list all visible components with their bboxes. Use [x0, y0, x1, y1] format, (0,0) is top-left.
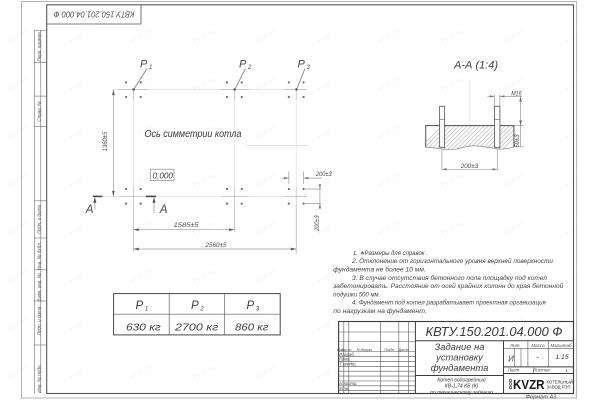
svg-text:N докум.: N докум. — [357, 347, 373, 352]
svg-text:ЗАВОД РЭП: ЗАВОД РЭП — [547, 385, 571, 390]
svg-text:КВТУ.150.201.04.000 Ф: КВТУ.150.201.04.000 Ф — [426, 324, 563, 339]
svg-text:А: А — [85, 204, 94, 216]
svg-text:установку: установку — [435, 352, 484, 363]
svg-text:Инв. № дубл.: Инв. № дубл. — [37, 242, 42, 270]
svg-text:по техническому заданию: по техническому заданию — [430, 390, 493, 396]
svg-text:630 кг: 630 кг — [126, 322, 161, 334]
svg-text:Подп. и дата: Подп. и дата — [37, 205, 42, 234]
svg-text:Перв. примен.: Перв. примен. — [37, 31, 42, 62]
svg-text:0,000: 0,000 — [153, 171, 174, 180]
svg-text:200±3: 200±3 — [460, 164, 479, 170]
svg-text:1. ∗Размеры для справок .: 1. ∗Размеры для справок . — [353, 249, 428, 257]
svg-text:Лит.: Лит. — [509, 343, 521, 348]
svg-text:Утв.: Утв. — [339, 386, 349, 391]
svg-text:Справ. №: Справ. № — [37, 101, 42, 122]
svg-text:1360±5: 1360±5 — [103, 131, 109, 151]
svg-text:2560±5: 2560±5 — [204, 243, 227, 249]
svg-text:50±3: 50±3 — [515, 134, 521, 148]
svg-text:1585±5: 1585±5 — [174, 223, 200, 229]
svg-text:Задание на: Задание на — [435, 341, 485, 352]
svg-text:фундамента: фундамента — [431, 362, 489, 373]
svg-text:4. Фундамент под котел разраба: 4. Фундамент под котел разрабатывает про… — [352, 299, 546, 307]
svg-text:Формат А3: Формат А3 — [526, 394, 557, 400]
svg-text:860 кг: 860 кг — [235, 322, 268, 334]
svg-text:Подп. и дата: Подп. и дата — [37, 306, 42, 335]
svg-text:2700 кг: 2700 кг — [174, 322, 218, 334]
svg-text:KVZR: KVZR — [513, 377, 545, 392]
svg-text:Подп.: Подп. — [384, 347, 395, 352]
svg-text:Дата: Дата — [397, 347, 409, 352]
svg-text:Котел водогрейный: Котел водогрейный — [437, 376, 486, 383]
svg-text:А: А — [159, 204, 168, 216]
svg-text:Лист: Лист — [507, 368, 520, 373]
svg-text:Листов: Листов — [532, 368, 550, 373]
svg-text:200±3: 200±3 — [315, 215, 321, 232]
svg-text:2. Отклонение от горизонтально: 2. Отклонение от горизонтального уровня … — [351, 257, 553, 265]
svg-text:Взам. инв. №: Взам. инв. № — [37, 273, 42, 301]
svg-text:Масштаб: Масштаб — [550, 343, 571, 348]
svg-text:И: И — [508, 354, 514, 363]
svg-text:Т.контр.: Т.контр. — [339, 362, 356, 367]
svg-text:1: 1 — [565, 368, 568, 374]
svg-text:по нагрузкам на фундамент.: по нагрузкам на фундамент. — [333, 307, 427, 315]
svg-text:КВТУ.150.201.04.000 Ф: КВТУ.150.201.04.000 Ф — [53, 9, 135, 18]
svg-text:200±3: 200±3 — [315, 172, 332, 178]
svg-text:Инв. № подл.: Инв. № подл. — [37, 364, 42, 393]
svg-text:фундамента не более 10 мм.: фундамента не более 10 мм. — [333, 266, 426, 274]
svg-text:3. В случае отсутствия бетонно: 3. В случае отсутствия бетонного пола пл… — [352, 274, 547, 282]
svg-text:1:15: 1:15 — [555, 354, 568, 361]
svg-text:КВ-1,74 КБ (К): КВ-1,74 КБ (К) — [445, 384, 479, 390]
svg-text:подушки 500 мм.: подушки 500 мм. — [333, 290, 380, 298]
svg-text:А-А (1:4): А-А (1:4) — [453, 60, 498, 72]
svg-text:Масса: Масса — [531, 343, 545, 348]
svg-text:забетонировать. Расстояние от: забетонировать. Расстояние от осей крайн… — [332, 282, 563, 290]
svg-text:Ось симметрии котла: Ось симметрии котла — [145, 129, 243, 140]
